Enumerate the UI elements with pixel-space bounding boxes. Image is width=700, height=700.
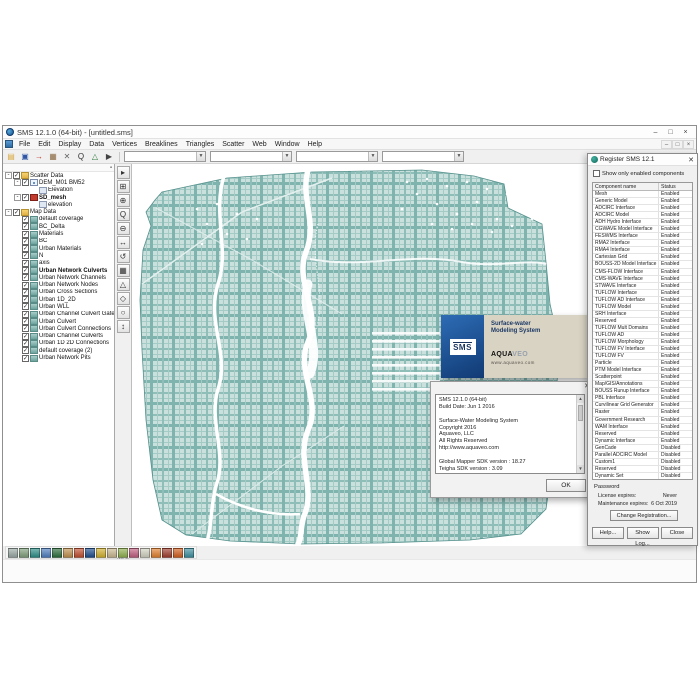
maintenance-expires-value: 6 Oct 2019: [651, 501, 691, 507]
tree-item[interactable]: - ✓ Scatter Data: [3, 172, 114, 179]
tree-item-label: Urban 1D 2D Connections: [39, 340, 109, 346]
palette-tool-button[interactable]: ▦: [117, 264, 130, 277]
window-control-button[interactable]: □: [663, 127, 678, 138]
component-row[interactable]: CMS-FLOW Interface Enabled: [593, 269, 692, 276]
maintenance-expires-label: Maintenance expires:: [598, 501, 648, 507]
component-status: Enabled: [659, 212, 692, 218]
tree-item-label: axis: [39, 260, 50, 266]
tree-expander-icon[interactable]: -: [14, 179, 21, 186]
tree-checkbox[interactable]: ✓: [22, 260, 29, 267]
tree-item-label: Urban Channel Culvert Gates: [39, 311, 114, 317]
component-row[interactable]: Parallel ADCIRC Model Disabled: [593, 452, 692, 459]
map-canvas[interactable]: SMS Surface-water Modeling System AQUAVE…: [132, 164, 588, 546]
toolbar-button[interactable]: △: [89, 151, 101, 163]
component-name: ADCIRC Model: [593, 212, 659, 218]
scrollbar-thumb[interactable]: [578, 405, 583, 421]
palette-tool-button[interactable]: ○: [117, 306, 130, 319]
about-text-line: Global Mapper SDK version : 18.27: [439, 459, 573, 466]
component-row[interactable]: ADH Hydro Interface Enabled: [593, 219, 692, 226]
component-name: PBL Interface: [593, 395, 659, 401]
tree-item-icon: [30, 245, 38, 252]
component-row[interactable]: TUFLOW Mult Domains Enabled: [593, 325, 692, 332]
aquaveo-icon: [591, 156, 598, 163]
show-enabled-checkbox[interactable]: [593, 170, 600, 177]
module-icon[interactable]: [173, 548, 183, 558]
tree-checkbox[interactable]: ✓: [22, 238, 29, 245]
component-row[interactable]: BOUSS-2D Model Interface Enabled: [593, 261, 692, 268]
toolbar-button[interactable]: ▤: [5, 151, 17, 163]
about-text-line: Build Date: Jun 1 2016: [439, 404, 573, 411]
child-window-control-button[interactable]: –: [661, 140, 672, 149]
components-table-header: Component name Status: [593, 183, 692, 191]
component-row[interactable]: STWAVE Interface Enabled: [593, 283, 692, 290]
tree-item-label: Materials: [39, 231, 63, 237]
palette-tool-button[interactable]: Q: [117, 208, 130, 221]
tree-item-label: Map Data: [30, 209, 56, 215]
menu-item[interactable]: Help: [304, 141, 326, 148]
component-row[interactable]: ADCIRC Model Enabled: [593, 212, 692, 219]
module-icon[interactable]: [74, 548, 84, 558]
ok-button[interactable]: OK: [546, 479, 586, 492]
tree-item-icon: [30, 318, 38, 325]
tree-checkbox[interactable]: ✓: [22, 296, 29, 303]
window-control-button[interactable]: ×: [678, 127, 693, 138]
tree-item-icon: [30, 252, 38, 259]
tree-item-label: default coverage (2): [39, 348, 92, 354]
tree-checkbox[interactable]: ✓: [22, 223, 29, 230]
component-row[interactable]: Raster Enabled: [593, 409, 692, 416]
component-name: Parallel ADCIRC Model: [593, 452, 659, 458]
component-row[interactable]: TUFLOW AD Enabled: [593, 332, 692, 339]
component-status: Enabled: [659, 290, 692, 296]
palette-tool-button[interactable]: ◇: [117, 292, 130, 305]
about-text-line: Surface-Water Modeling System: [439, 418, 573, 425]
tree-item-label: Urban Culvert: [39, 319, 76, 325]
component-row[interactable]: GenCade Disabled: [593, 445, 692, 452]
module-icon[interactable]: [85, 548, 95, 558]
component-row[interactable]: PBL Interface Enabled: [593, 395, 692, 402]
tree-checkbox[interactable]: ✓: [22, 289, 29, 296]
tree-item[interactable]: - ✓ BC_Delta: [3, 223, 114, 230]
tree-item[interactable]: - ✓ Urban Network Nodes: [3, 281, 114, 288]
chevron-down-icon[interactable]: ▼: [196, 152, 205, 161]
scroll-up-icon[interactable]: ▲: [577, 395, 584, 403]
window-control-button[interactable]: –: [648, 127, 663, 138]
component-name: Dynamic Set: [593, 473, 659, 479]
component-status: Enabled: [659, 360, 692, 366]
component-row[interactable]: Map/GIS/Annotations Enabled: [593, 381, 692, 388]
component-name: TUFLOW FV: [593, 353, 659, 359]
menu-item[interactable]: Breaklines: [141, 141, 182, 148]
tree-item[interactable]: - ✓ Urban Network Culverts: [3, 267, 114, 274]
module-icon[interactable]: [19, 548, 29, 558]
component-status: Enabled: [659, 283, 692, 289]
component-status: Enabled: [659, 198, 692, 204]
component-row[interactable]: Generic Model Enabled: [593, 198, 692, 205]
tree-item[interactable]: - ✓ default coverage: [3, 216, 114, 223]
chevron-down-icon[interactable]: ▼: [368, 152, 377, 161]
module-icon[interactable]: [118, 548, 128, 558]
menu-item[interactable]: Triangles: [182, 141, 219, 148]
tree-item[interactable]: - ✓ Urban 1D_2D: [3, 296, 114, 303]
tree-item[interactable]: - ✓ SD_mesh: [3, 194, 114, 201]
palette-tool-button[interactable]: ⊖: [117, 222, 130, 235]
component-row[interactable]: Government Research Enabled: [593, 417, 692, 424]
tree-checkbox[interactable]: ✓: [22, 179, 29, 186]
palette-tool-button[interactable]: △: [117, 278, 130, 291]
tree-item[interactable]: - ✓ Urban Network Pits: [3, 354, 114, 361]
tree-item[interactable]: - ✓ Urban Materials: [3, 245, 114, 252]
about-text-line: http://www.aquaveo.com: [439, 445, 573, 452]
tree-item-icon: [21, 209, 29, 216]
tree-item-label: BC: [39, 238, 47, 244]
child-window-control-button[interactable]: ×: [683, 140, 694, 149]
tree-item-icon: [30, 340, 38, 347]
component-name: ADCIRC Interface: [593, 205, 659, 211]
about-scrollbar[interactable]: ▲ ▼: [576, 395, 584, 473]
menu-item[interactable]: Edit: [34, 141, 54, 148]
menu-item[interactable]: Window: [271, 141, 304, 148]
component-name: Reserved: [593, 431, 659, 437]
child-window-control-button[interactable]: □: [672, 140, 683, 149]
tree-expander-icon[interactable]: -: [14, 194, 21, 201]
module-icon[interactable]: [184, 548, 194, 558]
tree-item[interactable]: - ✓ Urban 1D 2D Connections: [3, 340, 114, 347]
app-icon: [6, 128, 14, 136]
tree-item[interactable]: - ✓ Urban Cross Sections: [3, 289, 114, 296]
about-text-line: Teigha SDK version : 3.09: [439, 466, 573, 473]
component-status: Enabled: [659, 219, 692, 225]
component-row[interactable]: Scatterpoint Enabled: [593, 374, 692, 381]
tree-item-icon: [30, 311, 38, 318]
toolbar-button[interactable]: ▶: [103, 151, 115, 163]
tree-expander-icon[interactable]: -: [5, 172, 12, 179]
project-tree: - ✓ Scatter Data - ✓ DEM_M01 BM52: [3, 172, 114, 362]
title-bar: SMS 12.1.0 (64-bit) - [untitled.sms] –□×: [3, 126, 696, 139]
toolbar-button[interactable]: →: [33, 151, 45, 163]
component-row[interactable]: Dynamic Set Disabled: [593, 473, 692, 480]
tree-item[interactable]: - ✓ default coverage (2): [3, 347, 114, 354]
toolbar-button[interactable]: ▣: [19, 151, 31, 163]
tree-item-label: Urban Materials: [39, 246, 81, 252]
chevron-down-icon[interactable]: ▼: [282, 152, 291, 161]
module-icon[interactable]: [162, 548, 172, 558]
license-expires-value: Never: [663, 493, 691, 499]
component-row[interactable]: RMA4 Interface Enabled: [593, 247, 692, 254]
tree-item-icon: [30, 194, 38, 201]
tree-item[interactable]: - ✓ Elevation: [3, 187, 114, 194]
component-name: STWAVE Interface: [593, 283, 659, 289]
component-name: TUFLOW FV Interface: [593, 346, 659, 352]
component-name: Generic Model: [593, 198, 659, 204]
module-icon[interactable]: [129, 548, 139, 558]
tree-item[interactable]: - ✓ Map Data: [3, 208, 114, 215]
palette-tool-button[interactable]: ⊞: [117, 180, 130, 193]
tree-item[interactable]: - ✓ axis: [3, 260, 114, 267]
module-icon[interactable]: [8, 548, 18, 558]
component-row[interactable]: ADCIRC Interface Enabled: [593, 205, 692, 212]
component-status: Enabled: [659, 311, 692, 317]
component-row[interactable]: Cartesian Grid Enabled: [593, 254, 692, 261]
splash-text-panel: Surface-water Modeling System AQUAVEO ww…: [484, 315, 590, 378]
tree-item-icon: [39, 187, 47, 194]
palette-tool-button[interactable]: ↔: [117, 236, 130, 249]
component-row[interactable]: TUFLOW AD Interface Enabled: [593, 297, 692, 304]
about-text-line: [439, 452, 573, 459]
tree-item-label: Urban Network Culverts: [39, 268, 107, 274]
window-controls: –□×: [648, 127, 693, 138]
tree-item[interactable]: - ✓ Urban Culvert Connections: [3, 325, 114, 332]
component-status: Enabled: [659, 233, 692, 239]
menu-item[interactable]: File: [15, 141, 34, 148]
palette-tool-button[interactable]: ↕: [117, 320, 130, 333]
change-registration-button[interactable]: Change Registration...: [610, 510, 678, 521]
tree-checkbox[interactable]: ✓: [22, 216, 29, 223]
component-name: Government Research: [593, 417, 659, 423]
component-row[interactable]: Mesh Enabled: [593, 191, 692, 198]
tree-item[interactable]: - ✓ Urban Channel Culverts: [3, 333, 114, 340]
tree-item[interactable]: - ✓ Urban WLL: [3, 303, 114, 310]
component-name: CMS-WAVE Interface: [593, 276, 659, 282]
component-name: Dynamic Interface: [593, 438, 659, 444]
splash-tagline-line1: Surface-water: [491, 321, 590, 328]
component-name: Mesh: [593, 191, 659, 197]
menu-item[interactable]: Vertices: [108, 141, 141, 148]
tree-item[interactable]: - ✓ elevation: [3, 201, 114, 208]
component-row[interactable]: TUFLOW Morphology Enabled: [593, 339, 692, 346]
toolbar-button[interactable]: ✕: [61, 151, 73, 163]
palette-tool-button[interactable]: ▸: [117, 166, 130, 179]
component-status: Enabled: [659, 247, 692, 253]
about-text: SMS 12.1.0 (64-bit)Build Date: Jun 1 201…: [439, 397, 573, 473]
show-enabled-label: Show only enabled components: [602, 171, 684, 177]
component-status: Enabled: [659, 205, 692, 211]
show-log-button[interactable]: Show Log...: [627, 527, 659, 539]
status-bar: [3, 559, 696, 582]
component-name: PTM Model Interface: [593, 367, 659, 373]
tree-item[interactable]: - ✓ Materials: [3, 230, 114, 237]
toolbar-button[interactable]: Q: [75, 151, 87, 163]
module-icon[interactable]: [52, 548, 62, 558]
module-icon[interactable]: [41, 548, 51, 558]
about-text-line: SMS 12.1.0 (64-bit): [439, 397, 573, 404]
sms-logo: SMS: [450, 339, 476, 355]
component-name: TUFLOW Interface: [593, 290, 659, 296]
tree-item[interactable]: - ✓ Urban Network Channels: [3, 274, 114, 281]
component-name: CGWAVE Model Interface: [593, 226, 659, 232]
tree-checkbox[interactable]: ✓: [22, 303, 29, 310]
tree-item-label: Urban Cross Sections: [39, 289, 97, 295]
component-column-header: Component name: [593, 183, 659, 190]
component-name: CMS-FLOW Interface: [593, 269, 659, 275]
toolbar-combobox[interactable]: ▼: [124, 151, 206, 162]
chevron-down-icon[interactable]: ▼: [454, 152, 463, 161]
module-icon[interactable]: [107, 548, 117, 558]
component-row[interactable]: Custom1 Disabled: [593, 459, 692, 466]
tree-checkbox[interactable]: ✓: [22, 252, 29, 259]
module-icon[interactable]: [151, 548, 161, 558]
component-row[interactable]: CGWAVE Model Interface Enabled: [593, 226, 692, 233]
tree-item-icon: [30, 303, 38, 310]
component-name: Scatterpoint: [593, 374, 659, 380]
component-status: Enabled: [659, 318, 692, 324]
tree-item[interactable]: - ✓ Urban Channel Culvert Gates: [3, 311, 114, 318]
component-row[interactable]: WAM Interface Enabled: [593, 424, 692, 431]
panel-pin-icon[interactable]: ▪: [110, 165, 112, 171]
tree-checkbox[interactable]: ✓: [22, 347, 29, 354]
component-name: TUFLOW AD Interface: [593, 297, 659, 303]
component-name: Cartesian Grid: [593, 254, 659, 260]
component-status: Enabled: [659, 339, 692, 345]
tree-item-icon: [30, 296, 38, 303]
menu-items: FileEditDisplayDataVerticesBreaklinesTri…: [15, 141, 326, 148]
tree-item-label: SD_mesh: [39, 195, 66, 201]
component-name: TUFLOW Morphology: [593, 339, 659, 345]
tree-checkbox[interactable]: ✓: [22, 318, 29, 325]
menu-item[interactable]: Web: [248, 141, 270, 148]
component-row[interactable]: FESWMS Interface Enabled: [593, 233, 692, 240]
filter-checkbox-row: Show only enabled components: [593, 170, 693, 177]
tree-item[interactable]: - ✓ Urban Culvert: [3, 318, 114, 325]
sms-application-window: SMS 12.1.0 (64-bit) - [untitled.sms] –□×…: [2, 125, 697, 583]
component-status: Enabled: [659, 240, 692, 246]
tree-checkbox[interactable]: ✓: [22, 340, 29, 347]
tree-item-icon: [30, 267, 38, 274]
tree-checkbox[interactable]: ✓: [22, 355, 29, 362]
tree-item-icon: [30, 260, 38, 267]
component-row[interactable]: CMS-WAVE Interface Enabled: [593, 276, 692, 283]
status-column-header: Status: [659, 183, 692, 190]
component-status: Enabled: [659, 388, 692, 394]
about-text-line: Copyright 2016: [439, 425, 573, 432]
component-status: Enabled: [659, 269, 692, 275]
about-text-line: All Rights Reserved: [439, 438, 573, 445]
register-dialog-title: Register SMS 12.1: [600, 156, 655, 163]
component-row[interactable]: TUFLOW FV Enabled: [593, 353, 692, 360]
tree-checkbox[interactable]: ✓: [22, 311, 29, 318]
component-status: Disabled: [659, 445, 692, 451]
splash-logo-panel: SMS: [441, 315, 484, 378]
tree-checkbox[interactable]: ✓: [22, 274, 29, 281]
module-icon[interactable]: [96, 548, 106, 558]
component-row[interactable]: RMA2 Interface Enabled: [593, 240, 692, 247]
palette-tool-button[interactable]: ⊕: [117, 194, 130, 207]
module-icon[interactable]: [140, 548, 150, 558]
component-row[interactable]: Reserved Disabled: [593, 466, 692, 473]
aquaveo-logo: AQUAVEO: [491, 351, 528, 358]
help-button[interactable]: Help...: [592, 527, 624, 539]
component-row[interactable]: Curvilinear Grid Generator Enabled: [593, 402, 692, 409]
component-row[interactable]: PTM Model Interface Enabled: [593, 367, 692, 374]
component-name: TUFLOW AD: [593, 332, 659, 338]
module-icon[interactable]: [63, 548, 73, 558]
component-status: Disabled: [659, 452, 692, 458]
component-name: FESWMS Interface: [593, 233, 659, 239]
tree-item-label: Urban Network Nodes: [39, 282, 98, 288]
tree-item[interactable]: - ✓ N: [3, 252, 114, 259]
panel-header: ▪: [3, 164, 114, 172]
tree-item-label: elevation: [48, 202, 72, 208]
component-status: Disabled: [659, 466, 692, 472]
splash-screen: SMS Surface-water Modeling System AQUAVE…: [441, 315, 590, 378]
component-row[interactable]: TUFLOW Interface Enabled: [593, 290, 692, 297]
component-status: Enabled: [659, 226, 692, 232]
close-icon[interactable]: ✕: [688, 156, 694, 164]
tree-checkbox[interactable]: ✓: [13, 209, 20, 216]
menu-home-icon[interactable]: [5, 140, 13, 148]
tool-palette: ▸⊞⊕Q⊖↔↺▦△◇○↕: [115, 164, 132, 546]
toolbar-button[interactable]: ▦: [47, 151, 59, 163]
component-row[interactable]: Dynamic Interface Enabled: [593, 438, 692, 445]
component-name: TUFLOW Mult Domains: [593, 325, 659, 331]
tree-checkbox[interactable]: ✓: [22, 325, 29, 332]
toolbar-combobox[interactable]: ▼: [210, 151, 292, 162]
menu-item[interactable]: Scatter: [218, 141, 248, 148]
aquaveo-logo-b: VEO: [512, 351, 528, 358]
modules-toolbar: [5, 546, 197, 559]
tree-item[interactable]: - ✓ DEM_M01 BM52: [3, 179, 114, 186]
tree-checkbox[interactable]: ✓: [22, 245, 29, 252]
tree-checkbox[interactable]: ✓: [22, 231, 29, 238]
toolbar-buttons: ▤▣→▦✕Q△▶: [5, 151, 115, 163]
component-row[interactable]: Particle Enabled: [593, 360, 692, 367]
component-status: Enabled: [659, 374, 692, 380]
component-name: ADH Hydro Interface: [593, 219, 659, 225]
menu-item[interactable]: Display: [54, 141, 85, 148]
component-status: Enabled: [659, 409, 692, 415]
component-row[interactable]: SRH Interface Enabled: [593, 311, 692, 318]
component-status: Enabled: [659, 297, 692, 303]
tree-item-label: Urban Network Channels: [39, 275, 106, 281]
component-row[interactable]: Reserved Enabled: [593, 318, 692, 325]
tree-item-icon: [30, 216, 38, 223]
tree-checkbox[interactable]: ✓: [13, 172, 20, 179]
tree-checkbox[interactable]: ✓: [22, 282, 29, 289]
component-row[interactable]: TUFLOW FV Interface Enabled: [593, 346, 692, 353]
tree-item-icon: [30, 179, 38, 186]
aquaveo-url: www.aquaveo.com: [491, 360, 535, 365]
component-status: Enabled: [659, 395, 692, 401]
menu-item[interactable]: Data: [85, 141, 108, 148]
menu-bar: FileEditDisplayDataVerticesBreaklinesTri…: [3, 139, 696, 150]
about-dialog: ✕ SMS 12.1.0 (64-bit)Build Date: Jun 1 2…: [430, 381, 595, 498]
component-status: Enabled: [659, 191, 692, 197]
tree-checkbox[interactable]: ✓: [22, 333, 29, 340]
component-name: WAM Interface: [593, 424, 659, 430]
toolbar-combobox[interactable]: ▼: [296, 151, 378, 162]
tree-expander-icon[interactable]: -: [5, 209, 12, 216]
component-name: Custom1: [593, 459, 659, 465]
component-row[interactable]: Reserved Enabled: [593, 431, 692, 438]
component-status: Enabled: [659, 254, 692, 260]
close-button[interactable]: Close: [661, 527, 693, 539]
component-status: Disabled: [659, 473, 692, 479]
component-row[interactable]: BOUSS Runup Interface Enabled: [593, 388, 692, 395]
tree-item-icon: [30, 333, 38, 340]
component-row[interactable]: TUFLOW Model Enabled: [593, 304, 692, 311]
tree-checkbox[interactable]: ✓: [22, 194, 29, 201]
tree-item[interactable]: - ✓ BC: [3, 238, 114, 245]
component-name: Curvilinear Grid Generator: [593, 402, 659, 408]
module-icon[interactable]: [30, 548, 40, 558]
component-status: Enabled: [659, 402, 692, 408]
palette-tool-button[interactable]: ↺: [117, 250, 130, 263]
scroll-down-icon[interactable]: ▼: [577, 465, 584, 473]
component-name: TUFLOW Model: [593, 304, 659, 310]
toolbar-combobox[interactable]: ▼: [382, 151, 464, 162]
component-name: GenCade: [593, 445, 659, 451]
tree-checkbox[interactable]: ✓: [22, 267, 29, 274]
